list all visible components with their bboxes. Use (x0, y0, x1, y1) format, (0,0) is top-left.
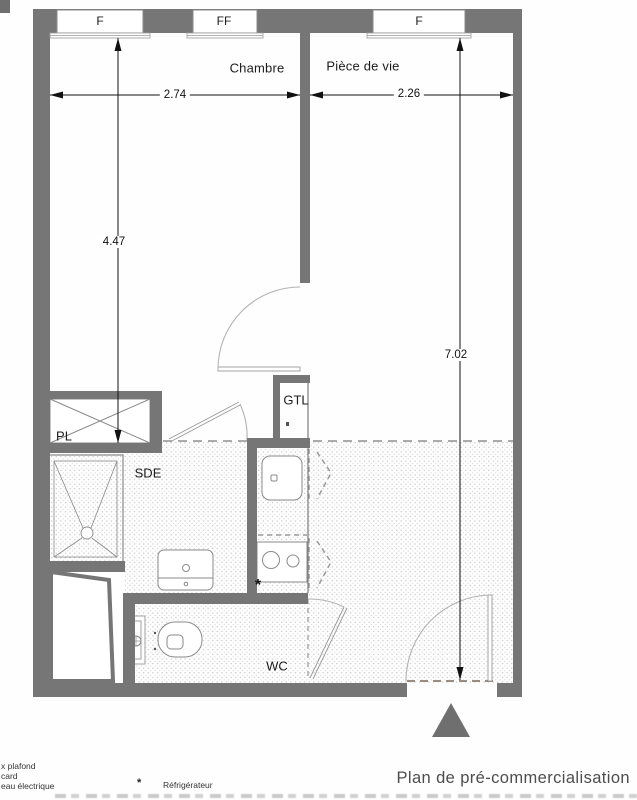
legend-refrigerator-label: Réfrigérateur (163, 780, 213, 790)
floor-plan-page: F FF F Chambre Pièce de vie SDE WC PL GT… (0, 0, 637, 800)
wall-pl-bottom (48, 443, 162, 453)
wall-wc-left (123, 593, 135, 683)
wall-right (513, 33, 522, 683)
room-label-chambre: Chambre (230, 61, 285, 76)
window-label-f1: F (96, 14, 103, 28)
room-label-sde: SDE (135, 466, 162, 481)
floor-plan-drawing (0, 0, 637, 800)
gtl-mark (286, 422, 289, 426)
wall-bottom-left (33, 683, 407, 697)
legend-refrigerator-symbol: * (137, 777, 141, 789)
wall-bottom-right (497, 683, 522, 697)
wall-chambre-sejour (300, 33, 310, 283)
kitchen-sink-symbol (262, 456, 302, 500)
room-label-pl: PL (56, 429, 72, 444)
dim-label-chambre-width: 2.74 (160, 89, 190, 101)
technical-shaft (51, 572, 113, 681)
legend-line-electrique: eau électrique (1, 781, 54, 791)
chambre-door (218, 287, 300, 371)
dim-label-piece-width: 2.26 (394, 88, 424, 100)
dim-label-chambre-length: 4.47 (99, 236, 129, 248)
window-label-ff: FF (217, 14, 232, 28)
legend-line-placard: card (1, 771, 18, 781)
dim-label-piece-length: 7.02 (441, 349, 471, 361)
cutoff-disclaimer-line (55, 794, 637, 798)
wall-shower-bottom (48, 561, 125, 572)
corner-artifact (0, 0, 10, 13)
wall-pl-top (48, 391, 162, 399)
vanity-basin-symbol (158, 550, 213, 590)
room-label-piece-de-vie: Pièce de vie (326, 59, 399, 74)
room-label-gtl: GTL (283, 393, 308, 408)
window-label-f2: F (415, 14, 422, 28)
window-sills (50, 33, 471, 38)
cooktop-symbol (257, 542, 307, 582)
entrance-marker-icon (432, 703, 470, 737)
wall-sde-wc (123, 593, 308, 604)
wall-gtl-left (273, 375, 280, 440)
legend-line-plafond: x plafond (1, 761, 36, 771)
refrigerator-marker: * (255, 577, 261, 595)
plan-title: Plan de pré-commercialisation (396, 769, 630, 788)
room-label-wc: WC (266, 659, 288, 674)
wall-left (33, 9, 50, 697)
sde-door (169, 402, 247, 442)
